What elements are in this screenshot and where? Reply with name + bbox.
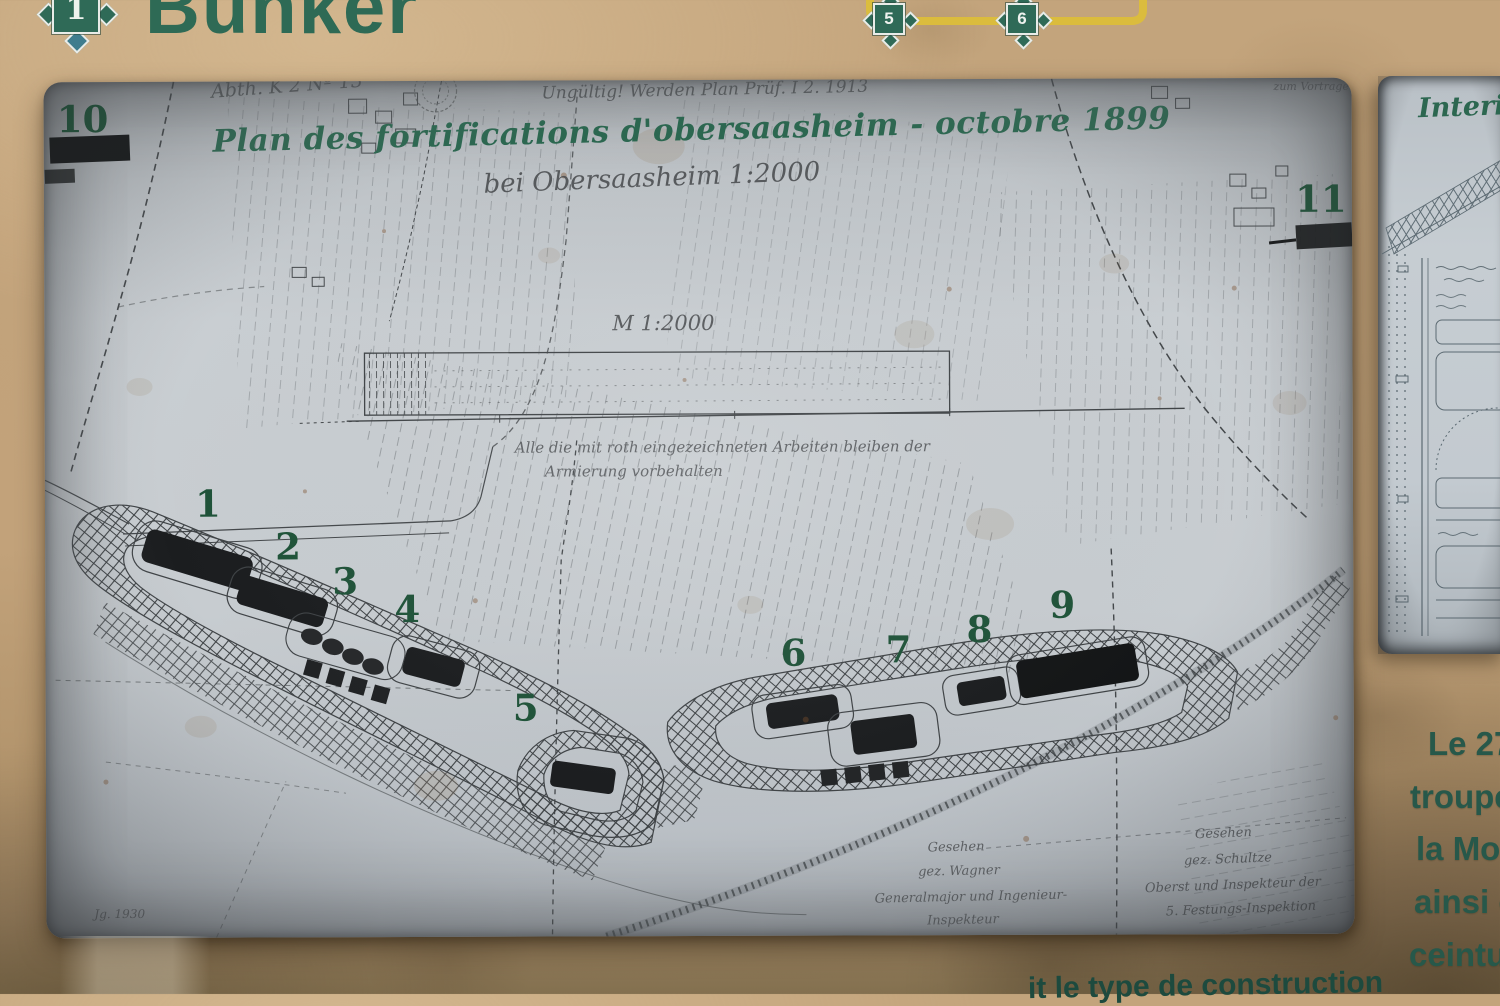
trail-badge-5: 5 — [873, 3, 905, 35]
board-light-strip — [60, 936, 210, 994]
header-badge-1: 1 — [52, 0, 100, 48]
bottom-caption-fragment: it le type de construction — [1028, 966, 1384, 1006]
trail-badge-6: 6 — [1006, 3, 1038, 35]
badge-1-label: 1 — [66, 0, 87, 27]
map-vignette — [44, 78, 1355, 939]
photo-of-information-board: { "header": { "badge_number": "1", "titl… — [0, 0, 1500, 994]
trail-badge-6-square: 6 — [1006, 3, 1038, 35]
side-text-line-4: ainsi qu — [1414, 883, 1500, 921]
interior-section-panel: Interie — [1378, 76, 1500, 654]
side-text-line-5: ceinture — [1409, 936, 1500, 974]
side-text-line-3: la Mose — [1416, 830, 1500, 868]
board-title: Bunker — [145, 0, 419, 46]
badge-5-label: 5 — [884, 9, 893, 29]
map-drawing: Abth. K 2 Nº 13 Ungültig! Werden Plan Pr… — [44, 78, 1355, 939]
badge-6-label: 6 — [1017, 9, 1026, 29]
side-text-line-1: Le 27/ — [1428, 725, 1500, 763]
trail-badge-number-1: 1 — [52, 0, 100, 34]
trail-badge-5-square: 5 — [873, 3, 905, 35]
interior-section-drawing — [1378, 76, 1500, 654]
panel-vignette — [1378, 76, 1500, 654]
fortification-plan-map: Abth. K 2 Nº 13 Ungültig! Werden Plan Pr… — [44, 78, 1355, 939]
side-text-line-2: troupes — [1410, 778, 1500, 816]
